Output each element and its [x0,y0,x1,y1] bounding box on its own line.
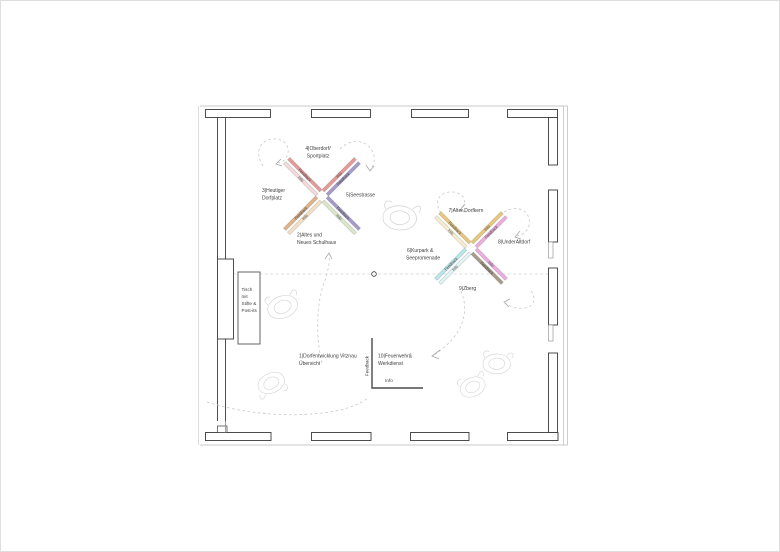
floor-plan-page: Tisch mit Stifte & Post-its Info Feedbac… [0,0,780,552]
exhibit-cross-2: Info Feedback Feedback Info Feedback Inf… [406,208,531,292]
doodle-sketch [253,369,288,400]
wall-segment-top-1 [206,110,271,118]
table-tisch: Tisch mit Stifte & Post-its [238,272,260,344]
station-8-label: 8|UnderAltdorf [498,240,531,246]
wall-pier-left [218,259,234,339]
doodle-sketch [456,371,489,400]
station-1-label-line2: Übersicht [299,360,321,367]
station-10-label-line2: Werkdienst [378,361,404,367]
flow-arc-bottom-left [207,398,368,415]
wall-segment-top-4 [508,110,558,118]
wall-spandrel-right-2 [549,325,554,341]
flow-line-down-left [434,291,465,355]
flow-loop-cross1 [259,139,288,166]
wall-spandrel-right-1 [549,242,554,258]
station-2-label-line2: Neues Schulhaus [297,240,337,246]
table-label-line2: mit [242,294,249,299]
table-label-line3: Stifte & [242,301,257,306]
station-7-label: 7|Alter Dorfkern [449,208,484,214]
station-4-label-line2: Sportplatz [307,154,330,160]
wall-segment-top-3 [412,110,469,118]
table-label-line1: Tisch [242,287,253,292]
station-6-label-line1: 6|Kurpark & [407,248,434,254]
wall-segment-bottom-1 [206,433,272,441]
station-4-label-line1: 4|Oberdorf/ [305,146,331,152]
station-1-label-line1: 1|Dorfentwicklung Vitznau [299,354,357,360]
wall-segment-right-1 [549,118,558,166]
floor-plan-drawing: Tisch mit Stifte & Post-its Info Feedbac… [0,0,780,552]
station-9-label: 9|Zberg [459,286,476,292]
l-wall-feedback-label: Feedback [365,355,370,376]
wall-segment-bottom-4 [508,433,559,441]
station-3-label-line1: 3|Heutiger [262,188,285,194]
wall-segment-right-2 [549,190,558,242]
wall-segment-bottom-3 [411,433,470,441]
station-2-label-line1: 2|Altes und [297,233,322,239]
l-wall-info-label: Info [385,378,393,383]
l-wall-station-10: Feedback Info 1|Dorfentwicklung Vitznau … [299,338,423,388]
flow-line-center-up [318,255,330,363]
flow-arc-cross2-right [504,208,529,236]
doodle-sketch [482,351,513,376]
column-marker [372,272,377,277]
station-3-label-line2: Dorfplatz [262,196,283,202]
wall-segment-top-2 [312,110,371,118]
wall-segment-right-4 [549,353,558,433]
station-6-label-line2: Seepromenade [406,256,440,262]
table-label-line4: Post-its [242,308,258,313]
station-5-label: 5|Seestrasse [346,193,375,199]
wall-segment-bottom-2 [312,433,372,441]
doodle-sketch [381,200,421,233]
wall-segment-right-3 [549,268,558,325]
page-border [1,1,780,552]
station-10-label-line1: 10|Feuerwehr& [378,354,413,360]
doodle-sketch [264,289,302,321]
